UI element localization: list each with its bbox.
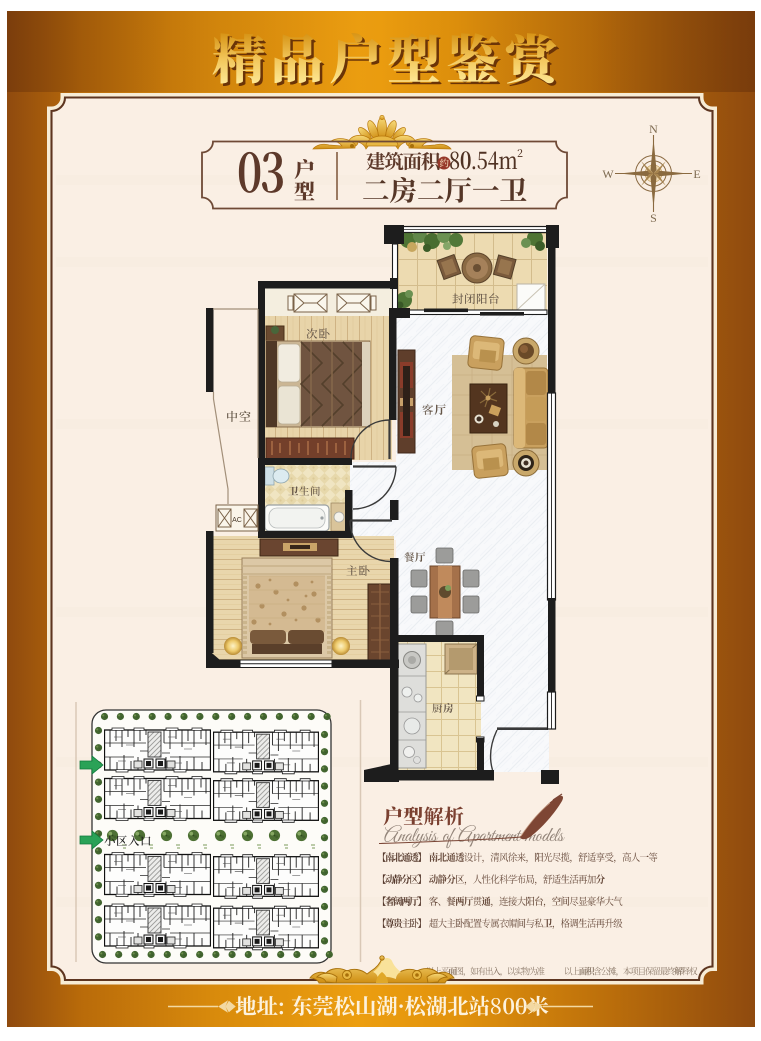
svg-text:AC: AC (232, 517, 242, 524)
svg-text:W: W (602, 167, 614, 181)
svg-text:E: E (693, 167, 700, 181)
svg-text:S: S (650, 211, 657, 225)
svg-text:N: N (649, 122, 658, 136)
